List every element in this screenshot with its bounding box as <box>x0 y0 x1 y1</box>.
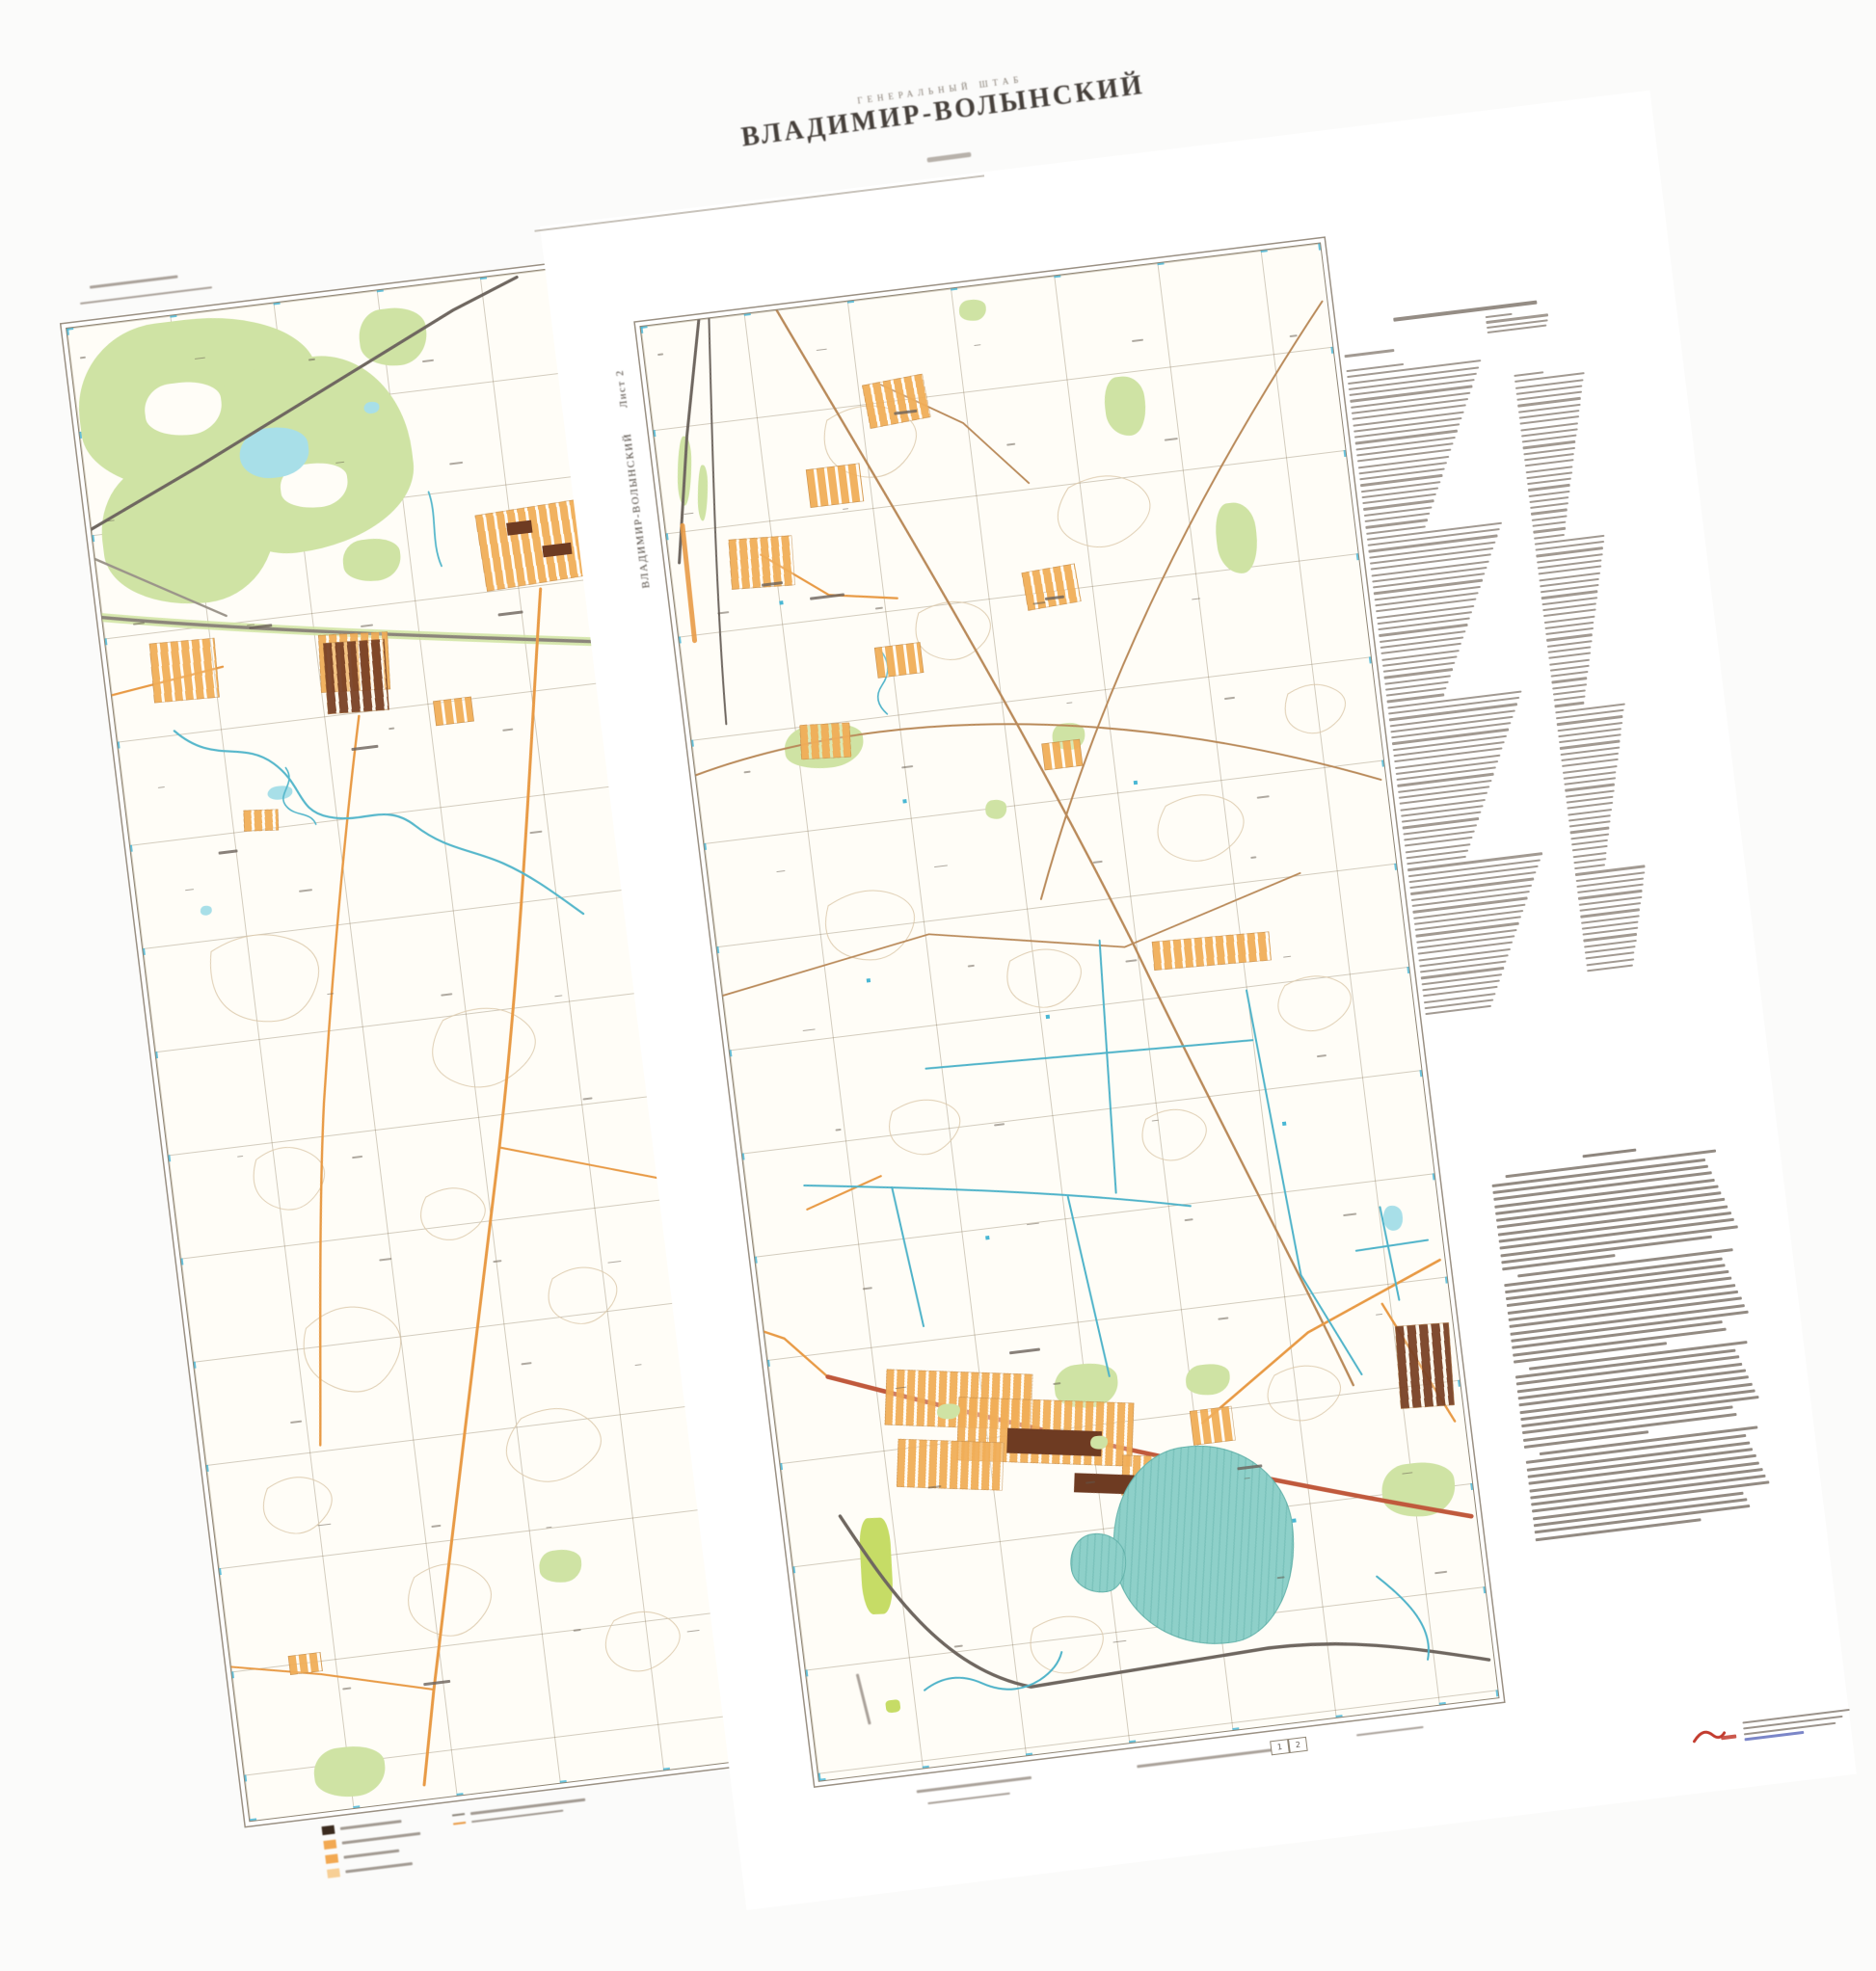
map-microtext-mark <box>1434 1571 1447 1574</box>
index-subheader-block <box>1486 308 1555 334</box>
map-microtext-mark <box>361 625 373 627</box>
map-microtext-mark <box>1185 1218 1193 1221</box>
map-microtext-mark <box>1092 861 1102 864</box>
map-microtext-mark <box>1290 334 1298 337</box>
map-microtext-mark <box>1006 443 1015 446</box>
map-microtext-mark <box>927 1485 941 1488</box>
scanned-map-page: ГЕНЕРАЛЬНЫЙ ШТАБ ВЛАДИМИР-ВОЛЫНСКИЙ <box>0 0 1876 1971</box>
sheet2-margin-note <box>917 1776 1032 1794</box>
map-microtext-mark <box>1165 438 1178 440</box>
map-microtext-mark <box>836 1129 842 1131</box>
reference-header <box>1582 1149 1636 1159</box>
text-line-placeholder <box>1531 509 1568 516</box>
map-microtext-mark <box>342 1688 351 1691</box>
map-microtext-mark <box>335 461 344 464</box>
legend-line-symbol <box>453 1822 466 1825</box>
map-microtext-mark <box>308 359 315 360</box>
legend-label <box>343 1850 399 1859</box>
map-microtext-mark <box>1218 1318 1228 1320</box>
text-line-placeholder <box>1553 689 1586 695</box>
map-microtext-mark <box>1085 1481 1095 1484</box>
map-microtext-mark <box>743 771 750 773</box>
map-microtext-mark <box>529 831 542 834</box>
map-microtext-mark <box>494 1260 502 1263</box>
map-microtext-mark <box>687 1629 700 1632</box>
red-swoosh-logo-icon <box>1691 1722 1739 1747</box>
sheet1-margin-note <box>80 286 212 305</box>
sheet1-margin-note <box>90 275 178 288</box>
map-microtext-mark <box>954 1645 963 1648</box>
map-microtext-mark <box>1283 955 1291 958</box>
map-microtext-mark <box>1376 1314 1382 1316</box>
map-microtext-mark <box>194 357 204 360</box>
text-line-placeholder <box>1572 845 1608 852</box>
text-line-placeholder <box>1587 964 1633 972</box>
index-column-label <box>1345 349 1395 358</box>
text-line-placeholder <box>1532 515 1568 521</box>
text-line-placeholder <box>1533 527 1566 533</box>
map-microtext-mark <box>1125 960 1137 963</box>
map-microtext-mark <box>1152 1119 1159 1121</box>
text-line-placeholder <box>1551 671 1589 678</box>
map-microtext-mark <box>634 1364 641 1366</box>
adjacent-sheets-diagram: 1 2 <box>1270 1737 1308 1756</box>
text-line-placeholder <box>1569 827 1609 834</box>
legend-swatch-orange <box>325 1853 338 1864</box>
map-microtext-mark <box>432 1525 442 1528</box>
map-microtext-mark <box>657 354 663 356</box>
map-microtext-mark <box>934 865 948 867</box>
map-microtext-mark <box>185 889 194 892</box>
reference-text-block <box>1489 1137 1775 1545</box>
text-line-placeholder <box>1486 313 1513 319</box>
text-line-placeholder <box>1514 371 1543 377</box>
map-sheet-2-paper: ВЛАДИМИР-ВОЛЫНСКИЙЛист 2 <box>540 91 1857 1910</box>
map-microtext-mark <box>1316 1054 1326 1057</box>
text-line-placeholder <box>1534 533 1565 539</box>
map-microtext-mark <box>1343 1213 1356 1216</box>
text-line-placeholder <box>1573 852 1607 858</box>
map-microtext-mark <box>1112 1639 1126 1642</box>
map-microtext-mark <box>389 728 394 730</box>
map-microtext-mark <box>776 870 785 873</box>
text-line-placeholder <box>1552 683 1587 690</box>
text-line-placeholder <box>1554 696 1586 702</box>
map-microtext-mark <box>237 1156 243 1158</box>
sheet2-margin-note <box>1137 1747 1280 1768</box>
text-line-placeholder <box>1532 521 1566 527</box>
map-microtext-mark <box>574 1629 581 1632</box>
reference-paragraphs <box>1491 1148 1775 1541</box>
map-microtext-mark <box>1132 339 1143 342</box>
legend-label <box>345 1862 413 1873</box>
map-microtext-mark <box>803 1028 816 1031</box>
map-microtext-mark <box>1053 1382 1060 1385</box>
map-microtext-mark <box>441 993 452 996</box>
map-microtext-mark <box>422 360 434 362</box>
legend-swatch-orange <box>323 1840 336 1851</box>
map-microtext-mark <box>1257 796 1270 799</box>
sheet2-margin-note <box>927 1793 1010 1805</box>
adjacent-sheet-cell: 1 <box>1270 1739 1290 1755</box>
publisher-text <box>1742 1708 1856 1744</box>
map-microtext-mark <box>379 1258 391 1261</box>
legend-line-symbol <box>452 1813 465 1817</box>
map-microtext-mark <box>290 1421 302 1424</box>
text-line-placeholder <box>1574 864 1605 869</box>
map-microtext-mark <box>684 512 694 515</box>
map-microtext-mark <box>352 1156 362 1159</box>
text-line-placeholder <box>1571 839 1608 846</box>
map-microtext-mark <box>843 508 848 510</box>
map-microtext-mark <box>502 729 513 732</box>
map-microtext-mark <box>521 1362 531 1365</box>
text-line-placeholder <box>1573 858 1606 864</box>
text-line-placeholder <box>1551 677 1587 683</box>
legend-label <box>340 1820 402 1829</box>
map-microtext-mark <box>974 344 980 346</box>
map-microtext-mark <box>994 1124 1005 1127</box>
map-microtext-mark <box>1033 601 1046 604</box>
publisher-logo-block <box>1691 1708 1857 1750</box>
map-microtext-mark <box>317 1523 331 1526</box>
map-microtext-mark <box>1224 697 1235 700</box>
map-microtext-mark <box>1250 857 1256 859</box>
text-line-placeholder <box>1554 702 1584 707</box>
map-microtext-mark <box>717 611 729 614</box>
legend-swatch-dark <box>322 1825 335 1836</box>
map-microtext-mark <box>299 890 312 892</box>
title-subtitle-chip <box>926 152 971 163</box>
map-microtext-mark <box>554 995 562 998</box>
map-microtext-mark <box>133 622 145 625</box>
map-microtext-mark <box>157 786 164 788</box>
map-microtext-mark <box>1244 1478 1249 1479</box>
map-microtext-mark <box>450 462 464 465</box>
map-microtext-mark <box>1066 702 1072 704</box>
map-microtext-mark <box>607 1261 621 1264</box>
map-microtext-mark <box>967 965 974 967</box>
map-microtext-mark <box>546 1527 551 1529</box>
legend-label <box>342 1832 421 1845</box>
map-microtext-mark <box>816 348 826 351</box>
map-microtext-mark <box>901 765 913 768</box>
sheet2-margin-note <box>1356 1726 1424 1737</box>
map-microtext-mark <box>582 1097 592 1100</box>
map-microtext-mark <box>1276 1576 1284 1579</box>
map-microtext-mark <box>895 1386 906 1389</box>
sheet2-side-label-number: Лист 2 <box>614 368 630 408</box>
map-microtext-mark <box>247 624 255 626</box>
map-microtext-mark <box>80 357 86 359</box>
legend-swatch-pale <box>327 1868 340 1878</box>
map-microtext-mark <box>327 993 334 995</box>
map-microtext-mark <box>875 607 883 610</box>
map-microtext-mark <box>105 519 115 522</box>
map-microtext-mark <box>1027 1222 1039 1225</box>
sheet2-side-label-name: ВЛАДИМИР-ВОЛЫНСКИЙ <box>622 432 653 589</box>
map-microtext-mark <box>1192 598 1200 600</box>
text-line-placeholder <box>1548 653 1591 659</box>
map-microtext-mark <box>862 1288 871 1291</box>
map-microtext-mark <box>1402 1472 1412 1475</box>
adjacent-sheet-cell: 2 <box>1288 1737 1308 1753</box>
